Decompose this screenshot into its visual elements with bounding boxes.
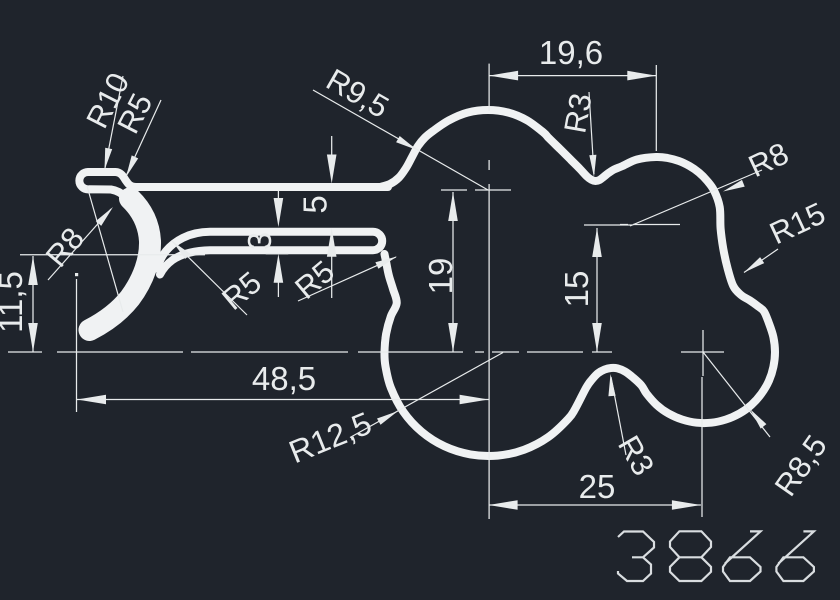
svg-text:R3: R3 [557, 91, 598, 136]
svg-text:19: 19 [422, 258, 459, 295]
svg-text:3: 3 [241, 232, 278, 250]
svg-text:48,5: 48,5 [252, 360, 316, 397]
svg-text:11,5: 11,5 [0, 271, 29, 333]
svg-text:5: 5 [297, 195, 334, 213]
svg-text:15: 15 [558, 271, 595, 308]
svg-text:25: 25 [579, 468, 616, 505]
svg-text:19,6: 19,6 [539, 34, 603, 71]
